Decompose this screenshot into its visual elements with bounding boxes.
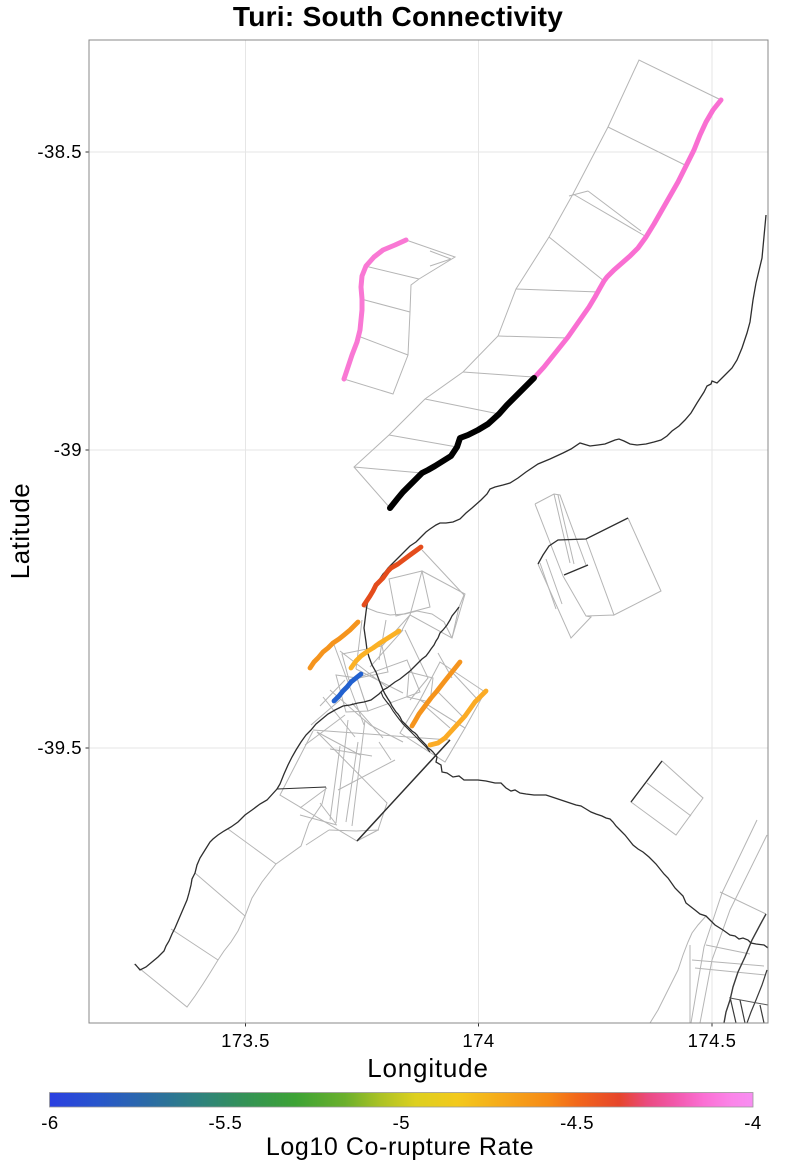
- svg-text:Longitude: Longitude: [367, 1053, 488, 1083]
- svg-text:-4.5: -4.5: [560, 1112, 594, 1133]
- svg-text:Turi: South Connectivity: Turi: South Connectivity: [233, 1, 563, 32]
- svg-text:Latitude: Latitude: [5, 483, 35, 580]
- svg-text:-38.5: -38.5: [37, 141, 82, 162]
- svg-text:-5.5: -5.5: [208, 1112, 242, 1133]
- svg-text:174.5: 174.5: [688, 1030, 737, 1051]
- svg-text:173.5: 173.5: [221, 1030, 270, 1051]
- svg-text:174: 174: [462, 1030, 494, 1051]
- svg-text:Log10 Co-rupture Rate: Log10 Co-rupture Rate: [266, 1133, 534, 1161]
- svg-text:-39: -39: [54, 439, 82, 460]
- svg-text:-39.5: -39.5: [37, 737, 82, 758]
- svg-text:-5: -5: [393, 1112, 410, 1133]
- svg-text:-4: -4: [744, 1112, 761, 1133]
- svg-text:-6: -6: [41, 1112, 58, 1133]
